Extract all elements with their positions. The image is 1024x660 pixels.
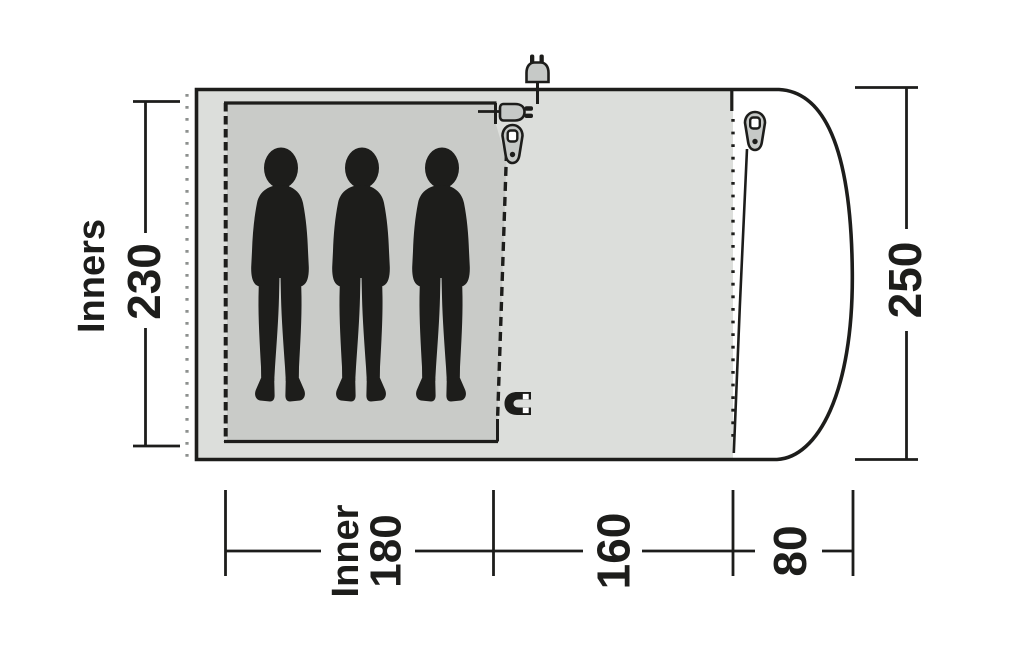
inner-door-zipper-pull-icon [503, 125, 523, 163]
floorplan-svg: 230 Inners 250 Inner 180 160 80 [0, 0, 1024, 660]
dimension-total-depth: 250 [855, 88, 931, 460]
inner-depth-label: 230 [118, 243, 170, 320]
porch-door-zipper-pull-icon [745, 112, 765, 150]
inner-width-label: 180 [362, 514, 411, 587]
living-area-width-label: 160 [588, 513, 640, 590]
total-depth-label: 250 [879, 242, 931, 319]
porch-depth-label: 80 [764, 525, 816, 576]
porch-door-zip-line [734, 149, 747, 453]
dimension-bottom-row: Inner 180 160 80 [226, 490, 854, 597]
inners-label: Inners [71, 219, 113, 333]
dimension-inner-depth: 230 [118, 102, 180, 447]
tent-floorplan-diagram: 230 Inners 250 Inner 180 160 80 [0, 0, 1024, 660]
